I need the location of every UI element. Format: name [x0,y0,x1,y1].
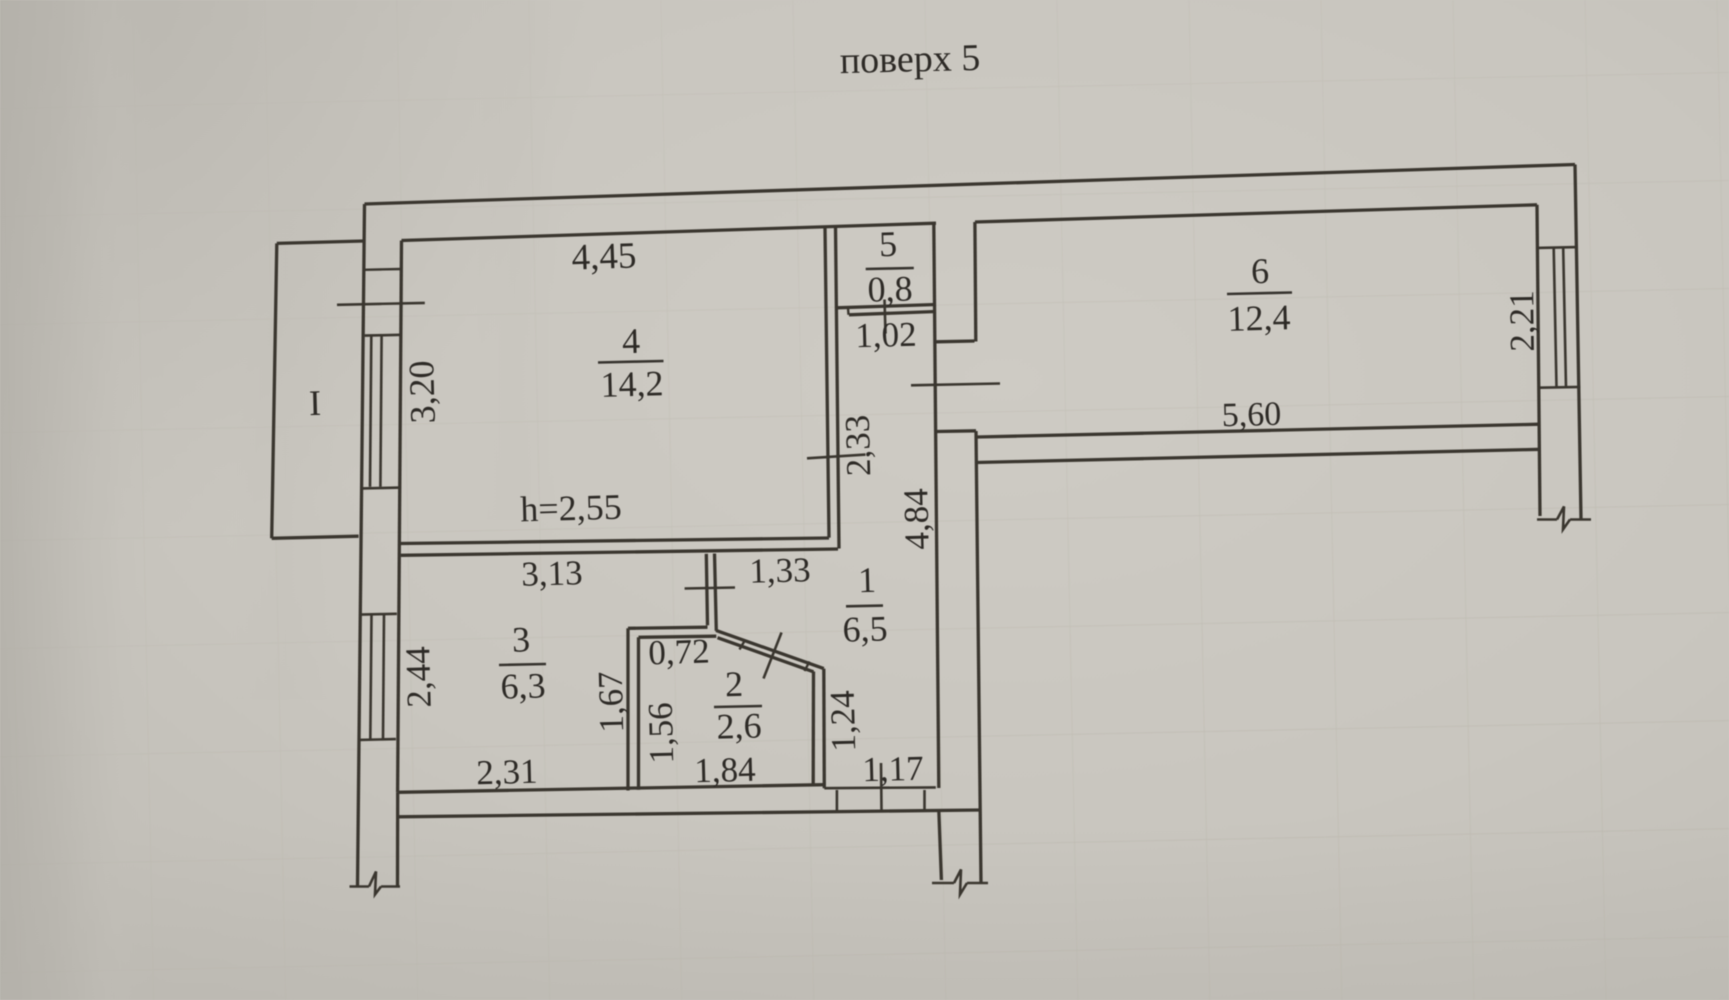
svg-text:1,24: 1,24 [823,690,864,752]
svg-text:4: 4 [621,321,640,361]
svg-text:6: 6 [1250,251,1269,291]
svg-text:1,67: 1,67 [591,671,632,733]
svg-text:2,6: 2,6 [716,705,762,746]
svg-text:12,4: 12,4 [1227,297,1291,339]
svg-text:2,21: 2,21 [1502,290,1542,352]
svg-text:3,20: 3,20 [401,360,443,424]
svg-text:I: I [308,383,321,423]
svg-text:14,2: 14,2 [600,363,664,405]
svg-text:0,72: 0,72 [648,631,711,672]
svg-text:2,31: 2,31 [476,752,538,793]
svg-text:3,13: 3,13 [521,553,583,594]
svg-text:0,8: 0,8 [867,268,913,309]
svg-text:h=2,55: h=2,55 [520,487,622,530]
svg-text:2: 2 [724,664,743,704]
svg-text:5: 5 [878,224,897,264]
svg-text:6,3: 6,3 [500,665,546,706]
svg-text:2,44: 2,44 [398,646,439,708]
svg-text:6,5: 6,5 [842,608,888,649]
svg-text:2,33: 2,33 [838,414,879,476]
svg-text:5,60: 5,60 [1221,396,1281,435]
svg-text:1,33: 1,33 [749,550,811,591]
svg-text:4,45: 4,45 [571,235,637,278]
svg-text:1,02: 1,02 [855,315,917,356]
svg-text:4,84: 4,84 [896,488,937,550]
svg-text:поверх 5: поверх 5 [839,37,980,82]
svg-text:1: 1 [857,560,876,600]
svg-text:1,84: 1,84 [694,750,756,791]
svg-text:1,17: 1,17 [862,749,924,790]
svg-text:3: 3 [511,619,530,659]
svg-text:1,56: 1,56 [641,702,682,764]
